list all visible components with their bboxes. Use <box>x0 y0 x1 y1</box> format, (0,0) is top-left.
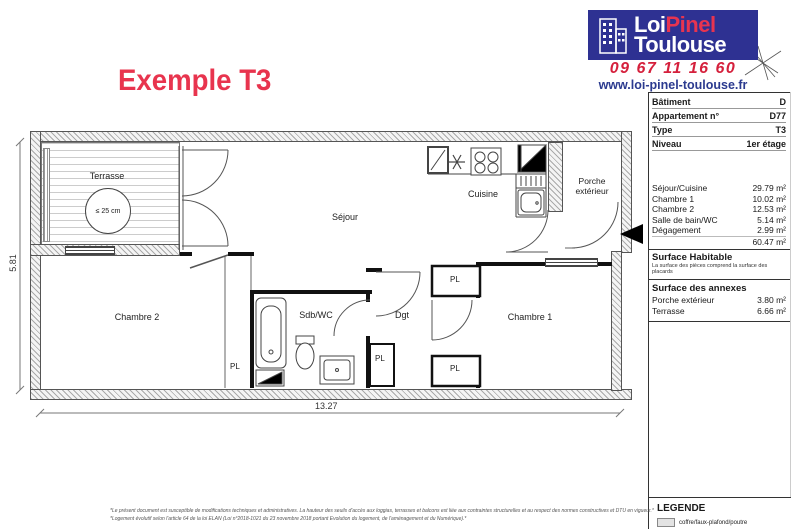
surfaces-list: Séjour/Cuisine 29.79 m² Chambre 1 10.02 … <box>652 183 786 247</box>
flyer-page: Exemple T3 Terrasse ≤ 25 cm Séjour Cuisi… <box>0 0 800 529</box>
threshold-badge: ≤ 25 cm <box>85 188 131 234</box>
surface-value: 5.14 m² <box>757 215 786 225</box>
toilet-icon <box>296 336 314 369</box>
info-label: Appartement n° <box>652 111 719 121</box>
info-table: Bâtiment D Appartement n° D77 Type T3 Ni… <box>652 95 786 151</box>
surface-row: Salle de bain/WC 5.14 m² <box>652 215 786 226</box>
room-label-cuisine: Cuisine <box>458 189 508 199</box>
info-label: Type <box>652 125 672 135</box>
sink-icon <box>516 174 546 215</box>
surface-value: 29.79 m² <box>752 183 786 193</box>
surface-habitable-note: La surface des pièces comprend la surfac… <box>652 263 786 275</box>
surface-total: 60.47 m² <box>752 237 786 247</box>
washbasin-icon <box>320 356 354 384</box>
room-label-chambre2: Chambre 2 <box>107 312 167 322</box>
annex-row: Porche extérieur 3.80 m² <box>652 295 786 306</box>
coffre-swatch-icon <box>657 518 675 527</box>
surface-label: Chambre 1 <box>652 194 694 204</box>
room-label-sejour: Séjour <box>325 212 365 222</box>
phone-number: 09 67 11 16 60 <box>588 60 758 78</box>
annex-label: Terrasse <box>652 306 685 316</box>
annexes-list: Porche extérieur 3.80 m² Terrasse 6.66 m… <box>652 295 786 316</box>
surface-value: 2.99 m² <box>757 225 786 235</box>
entrance-arrow-icon <box>620 224 643 244</box>
surface-row: Chambre 2 12.53 m² <box>652 204 786 215</box>
surface-row: Dégagement 2.99 m² <box>652 225 786 236</box>
room-label-porche-2: extérieur <box>565 186 619 196</box>
legend-item-label: coffre/faux-plafond/poutre <box>679 520 747 526</box>
website-link[interactable]: www.loi-pinel-toulouse.fr <box>583 78 763 92</box>
kitchen-shaft-icon <box>518 145 546 172</box>
closet-boxes <box>370 266 480 386</box>
room-label-porche-1: Porche <box>565 176 619 186</box>
dimension-width: 13.27 <box>315 401 338 411</box>
info-row-niveau: Niveau 1er étage <box>652 137 786 151</box>
cooktop-icon <box>471 148 501 175</box>
shaft-icon <box>256 370 284 386</box>
annex-row: Terrasse 6.66 m² <box>652 306 786 317</box>
surface-row: Séjour/Cuisine 29.79 m² <box>652 183 786 194</box>
surface-value: 10.02 m² <box>752 194 786 204</box>
room-label-terrasse: Terrasse <box>77 171 137 181</box>
annexes-title: Surface des annexes <box>652 283 747 294</box>
footnote-line2: *Logement évolutif selon l'article 64 de… <box>110 516 466 522</box>
annex-value: 3.80 m² <box>757 295 786 305</box>
logo-text: LoiPinel Toulouse <box>634 15 726 55</box>
closet-label-dgt-top: PL <box>450 275 460 284</box>
info-value: D77 <box>769 111 786 121</box>
legend-item: coffre/faux-plafond/poutre <box>657 518 791 527</box>
building-icon <box>592 13 630 57</box>
surface-label: Salle de bain/WC <box>652 215 718 225</box>
kitchen-fixtures <box>428 145 546 217</box>
closet-label-dgt-bottom: PL <box>450 364 460 373</box>
footnote-line1: *Le présent document est susceptible de … <box>110 508 654 514</box>
info-row-appartement: Appartement n° D77 <box>652 109 786 123</box>
surface-label: Dégagement <box>652 225 701 235</box>
legend-box: LEGENDE coffre/faux-plafond/poutre <box>648 497 791 529</box>
info-row-batiment: Bâtiment D <box>652 95 786 109</box>
info-value: 1er étage <box>746 139 786 149</box>
dimension-height: 5.81 <box>8 254 18 272</box>
room-label-chambre1: Chambre 1 <box>500 312 560 322</box>
info-label: Bâtiment <box>652 97 691 107</box>
threshold-text: ≤ 25 cm <box>96 208 121 215</box>
annex-value: 6.66 m² <box>757 306 786 316</box>
info-row-type: Type T3 <box>652 123 786 137</box>
legend-title: LEGENDE <box>657 503 791 514</box>
surface-row: Chambre 1 10.02 m² <box>652 194 786 205</box>
vent-star-icon <box>449 155 465 169</box>
surface-habitable-title: Surface Habitable <box>652 252 732 263</box>
surface-total-row: 60.47 m² <box>652 236 786 248</box>
bathtub-icon <box>256 298 286 368</box>
closet-label-chambre2: PL <box>230 362 240 371</box>
info-label: Niveau <box>652 139 682 149</box>
info-value: T3 <box>775 125 786 135</box>
surface-label: Chambre 2 <box>652 204 694 214</box>
surface-label: Séjour/Cuisine <box>652 183 707 193</box>
room-label-sdb: Sdb/WC <box>288 310 344 320</box>
fridge-icon <box>428 147 448 173</box>
info-value: D <box>780 97 787 107</box>
annex-label: Porche extérieur <box>652 295 714 305</box>
logo: LoiPinel Toulouse <box>588 10 758 60</box>
brand-word-toulouse: Toulouse <box>634 32 726 57</box>
closet-label-dgt-left: PL <box>375 354 385 363</box>
surface-value: 12.53 m² <box>752 204 786 214</box>
room-label-dgt: Dgt <box>388 310 416 320</box>
